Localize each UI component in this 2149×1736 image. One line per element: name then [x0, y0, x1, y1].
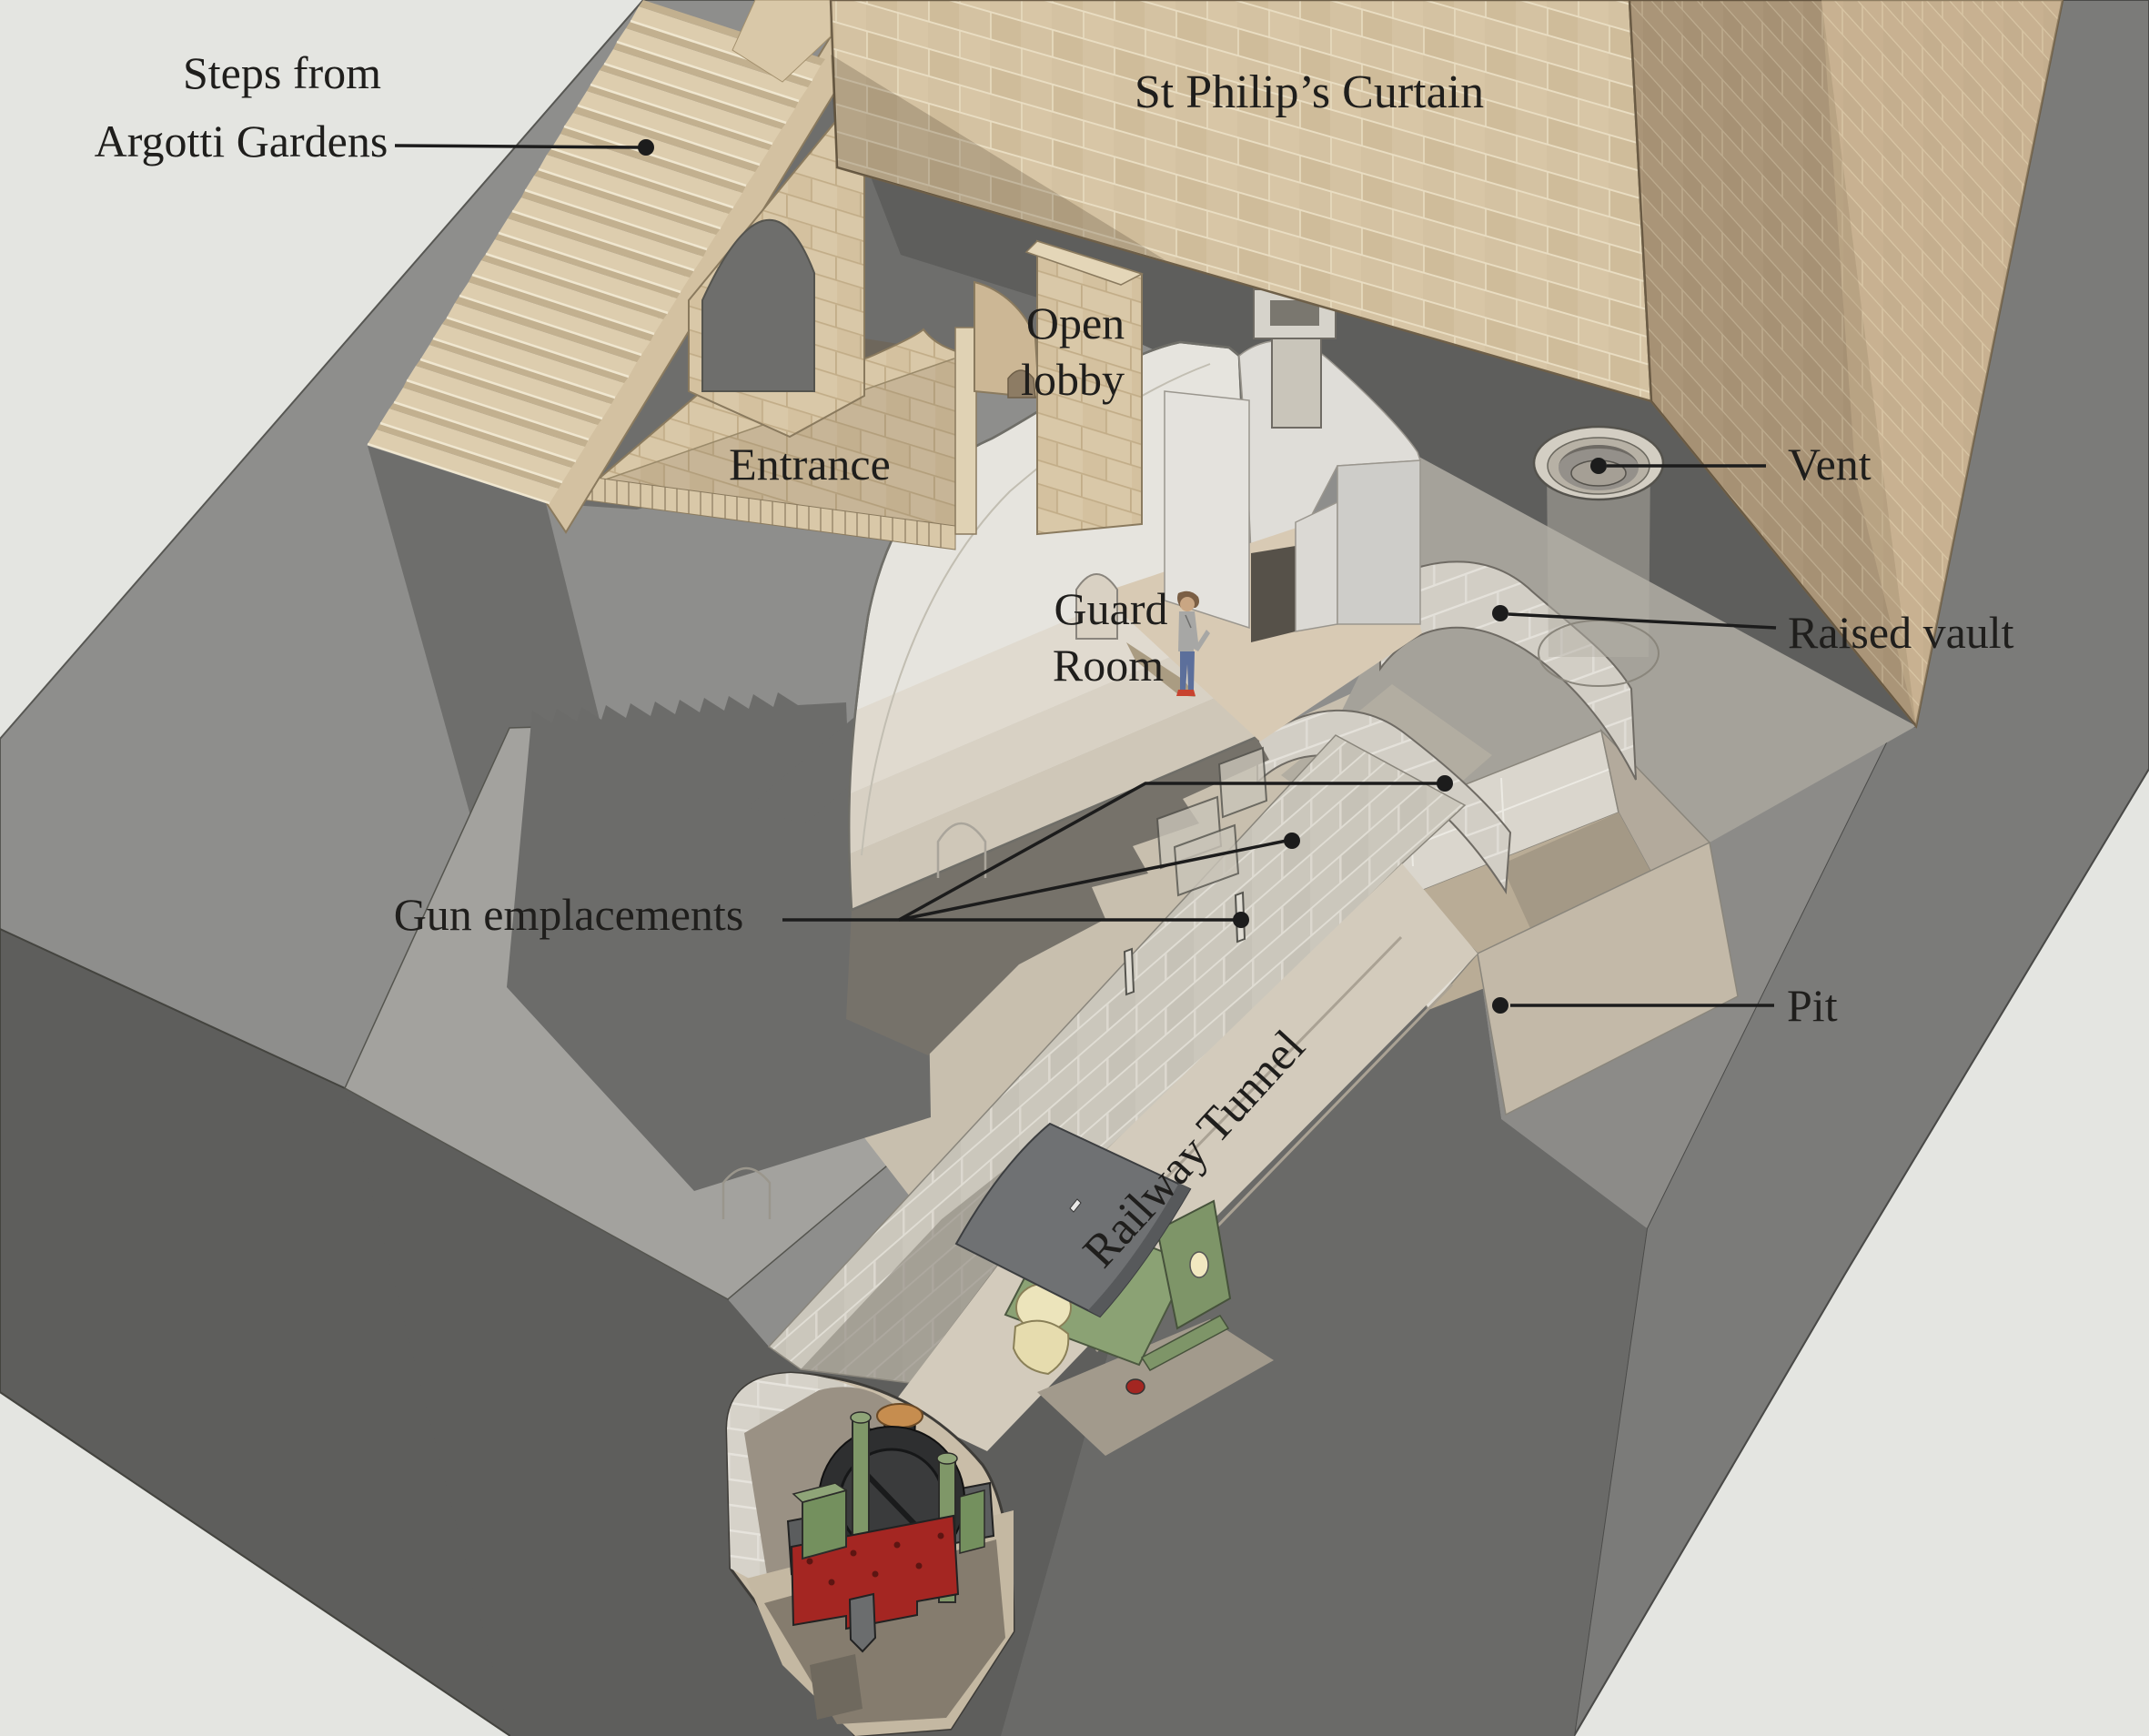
svg-text:Open: Open [1026, 298, 1125, 348]
svg-text:Argotti Gardens: Argotti Gardens [95, 116, 388, 167]
svg-text:Raised vault: Raised vault [1788, 607, 2014, 658]
svg-text:Entrance: Entrance [729, 439, 891, 490]
svg-text:Gun emplacements: Gun emplacements [394, 889, 744, 940]
svg-text:Pit: Pit [1787, 980, 1838, 1031]
svg-text:St Philip’s Curtain: St Philip’s Curtain [1135, 66, 1484, 118]
svg-text:lobby: lobby [1021, 354, 1125, 405]
svg-text:Vent: Vent [1788, 439, 1872, 490]
svg-text:Steps from: Steps from [183, 47, 381, 98]
svg-text:Guard: Guard [1054, 583, 1168, 634]
svg-text:Room: Room [1053, 640, 1164, 691]
